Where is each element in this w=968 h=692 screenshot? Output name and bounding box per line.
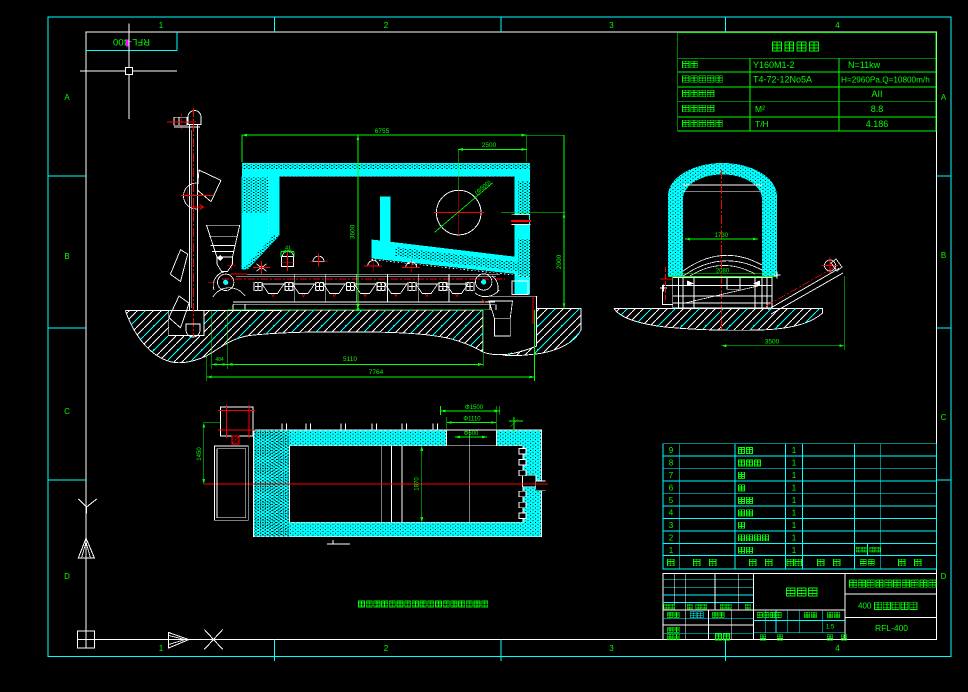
svg-text:2080: 2080 xyxy=(716,269,730,275)
svg-text:3: 3 xyxy=(609,644,614,653)
svg-text:8: 8 xyxy=(669,458,674,467)
svg-text:1: 1 xyxy=(792,446,797,455)
svg-text:Y160M1-2: Y160M1-2 xyxy=(753,60,795,70)
svg-text:2000: 2000 xyxy=(556,254,563,269)
svg-text:7: 7 xyxy=(669,471,674,480)
svg-text:1: 1 xyxy=(669,546,674,555)
svg-text:6755: 6755 xyxy=(375,128,390,135)
svg-text:2: 2 xyxy=(384,644,389,653)
svg-text:6: 6 xyxy=(669,483,674,492)
svg-text:2: 2 xyxy=(384,21,389,30)
svg-text:Φ600: Φ600 xyxy=(464,431,479,437)
svg-text:2: 2 xyxy=(669,533,674,542)
svg-text:T4-72-12No5A: T4-72-12No5A xyxy=(753,75,812,85)
svg-text:4: 4 xyxy=(835,21,840,30)
svg-text:N=11kw: N=11kw xyxy=(848,60,881,70)
svg-text:400: 400 xyxy=(858,602,872,611)
svg-text:1870: 1870 xyxy=(415,477,421,491)
svg-text:1: 1 xyxy=(159,21,164,30)
svg-text:8.8: 8.8 xyxy=(871,104,884,114)
svg-text:2500: 2500 xyxy=(482,142,497,149)
svg-text:5110: 5110 xyxy=(343,356,357,363)
svg-text:5: 5 xyxy=(669,496,674,505)
svg-text:RFL-400: RFL-400 xyxy=(875,623,908,633)
svg-text:Φ1500: Φ1500 xyxy=(465,405,484,411)
svg-text:484: 484 xyxy=(215,357,224,363)
svg-text:H=2960Pa,Q=10800m/h: H=2960Pa,Q=10800m/h xyxy=(841,76,930,85)
svg-text:Φ1110: Φ1110 xyxy=(463,417,481,423)
svg-text:AII: AII xyxy=(871,89,882,99)
svg-text:4: 4 xyxy=(669,508,674,517)
svg-text:1: 1 xyxy=(792,458,797,467)
svg-text:M²: M² xyxy=(755,104,765,114)
svg-text:1: 1 xyxy=(792,471,797,480)
svg-text:D: D xyxy=(941,572,947,581)
svg-text:A: A xyxy=(64,93,70,102)
svg-text:B: B xyxy=(941,251,946,260)
svg-text:T/H: T/H xyxy=(755,119,769,129)
svg-text:1: 1 xyxy=(792,521,797,530)
svg-text:3: 3 xyxy=(669,521,674,530)
svg-text:1450: 1450 xyxy=(197,447,203,461)
svg-text:RFL-400: RFL-400 xyxy=(113,36,150,47)
svg-text:D: D xyxy=(64,572,70,581)
svg-text:1: 1 xyxy=(159,644,164,653)
svg-text:3: 3 xyxy=(609,21,614,30)
svg-text:3600: 3600 xyxy=(350,224,357,239)
svg-text:4.186: 4.186 xyxy=(866,119,889,129)
svg-text:9: 9 xyxy=(669,446,674,455)
svg-text:B: B xyxy=(64,252,69,261)
svg-text:1:5: 1:5 xyxy=(826,625,835,631)
svg-text:1: 1 xyxy=(792,546,797,555)
svg-text:A: A xyxy=(941,93,947,102)
svg-text:3500: 3500 xyxy=(765,339,780,346)
svg-text:1: 1 xyxy=(792,496,797,505)
svg-text:1: 1 xyxy=(792,483,797,492)
svg-text:C: C xyxy=(64,407,70,416)
svg-text:1: 1 xyxy=(792,508,797,517)
svg-text:7764: 7764 xyxy=(369,369,384,376)
svg-text:1: 1 xyxy=(792,533,797,542)
svg-text:1730: 1730 xyxy=(715,233,729,239)
svg-text:C: C xyxy=(941,413,947,422)
svg-text:4: 4 xyxy=(835,644,840,653)
